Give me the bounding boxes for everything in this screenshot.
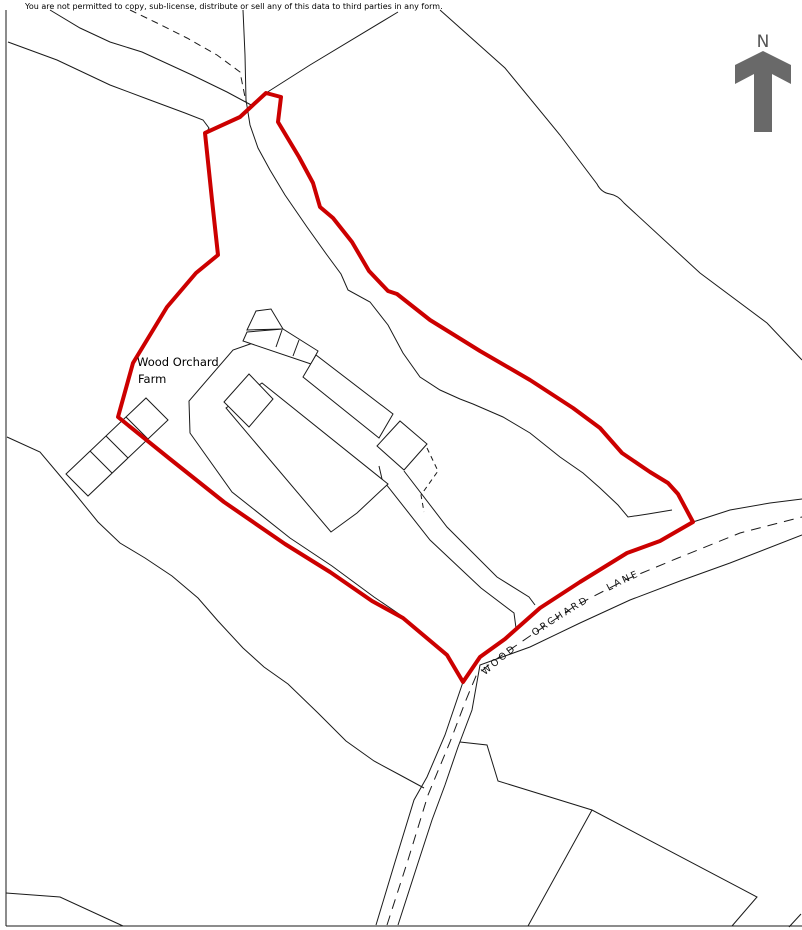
farm-label-line2: Farm — [138, 372, 166, 386]
copyright-notice: You are not permitted to copy, sub-licen… — [24, 2, 443, 11]
north-label: N — [757, 32, 770, 52]
access-track-west-edge — [379, 466, 516, 628]
southeast-field-line-a — [460, 742, 757, 926]
corner-field-stub — [789, 914, 801, 927]
north-arrow: N — [735, 32, 791, 132]
road-label-path — [482, 532, 760, 678]
bottomleft-field-line — [6, 893, 123, 926]
access-track-east-edge — [404, 471, 535, 605]
track-north-upper-edge — [50, 10, 253, 106]
southeast-field-line-b — [528, 810, 592, 926]
boundary-from-apex — [266, 12, 398, 93]
road-northwest-edge — [376, 499, 802, 925]
farm-dashed-path — [421, 448, 438, 512]
track-north-lower-edge — [8, 42, 209, 133]
farm-label-line1: Wood Orchard — [137, 355, 219, 369]
map-canvas: You are not permitted to copy, sub-licen… — [0, 0, 802, 930]
building-main-range — [303, 355, 393, 438]
site-plan-map: You are not permitted to copy, sub-licen… — [0, 0, 802, 930]
footpath-dashed — [130, 10, 246, 102]
road-name-label: WOOD ORCHARD LANE — [480, 568, 642, 677]
building-north-small — [247, 309, 283, 330]
north-arrow-icon — [735, 51, 791, 132]
